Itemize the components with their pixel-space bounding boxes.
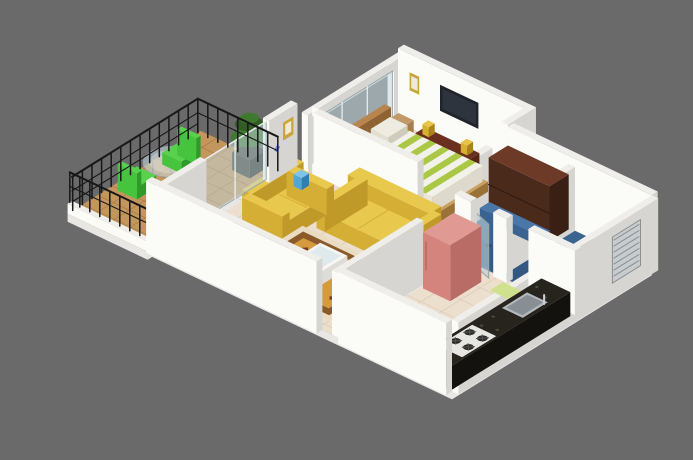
floorplan-stage	[0, 0, 693, 460]
floorplan-render	[0, 0, 693, 460]
